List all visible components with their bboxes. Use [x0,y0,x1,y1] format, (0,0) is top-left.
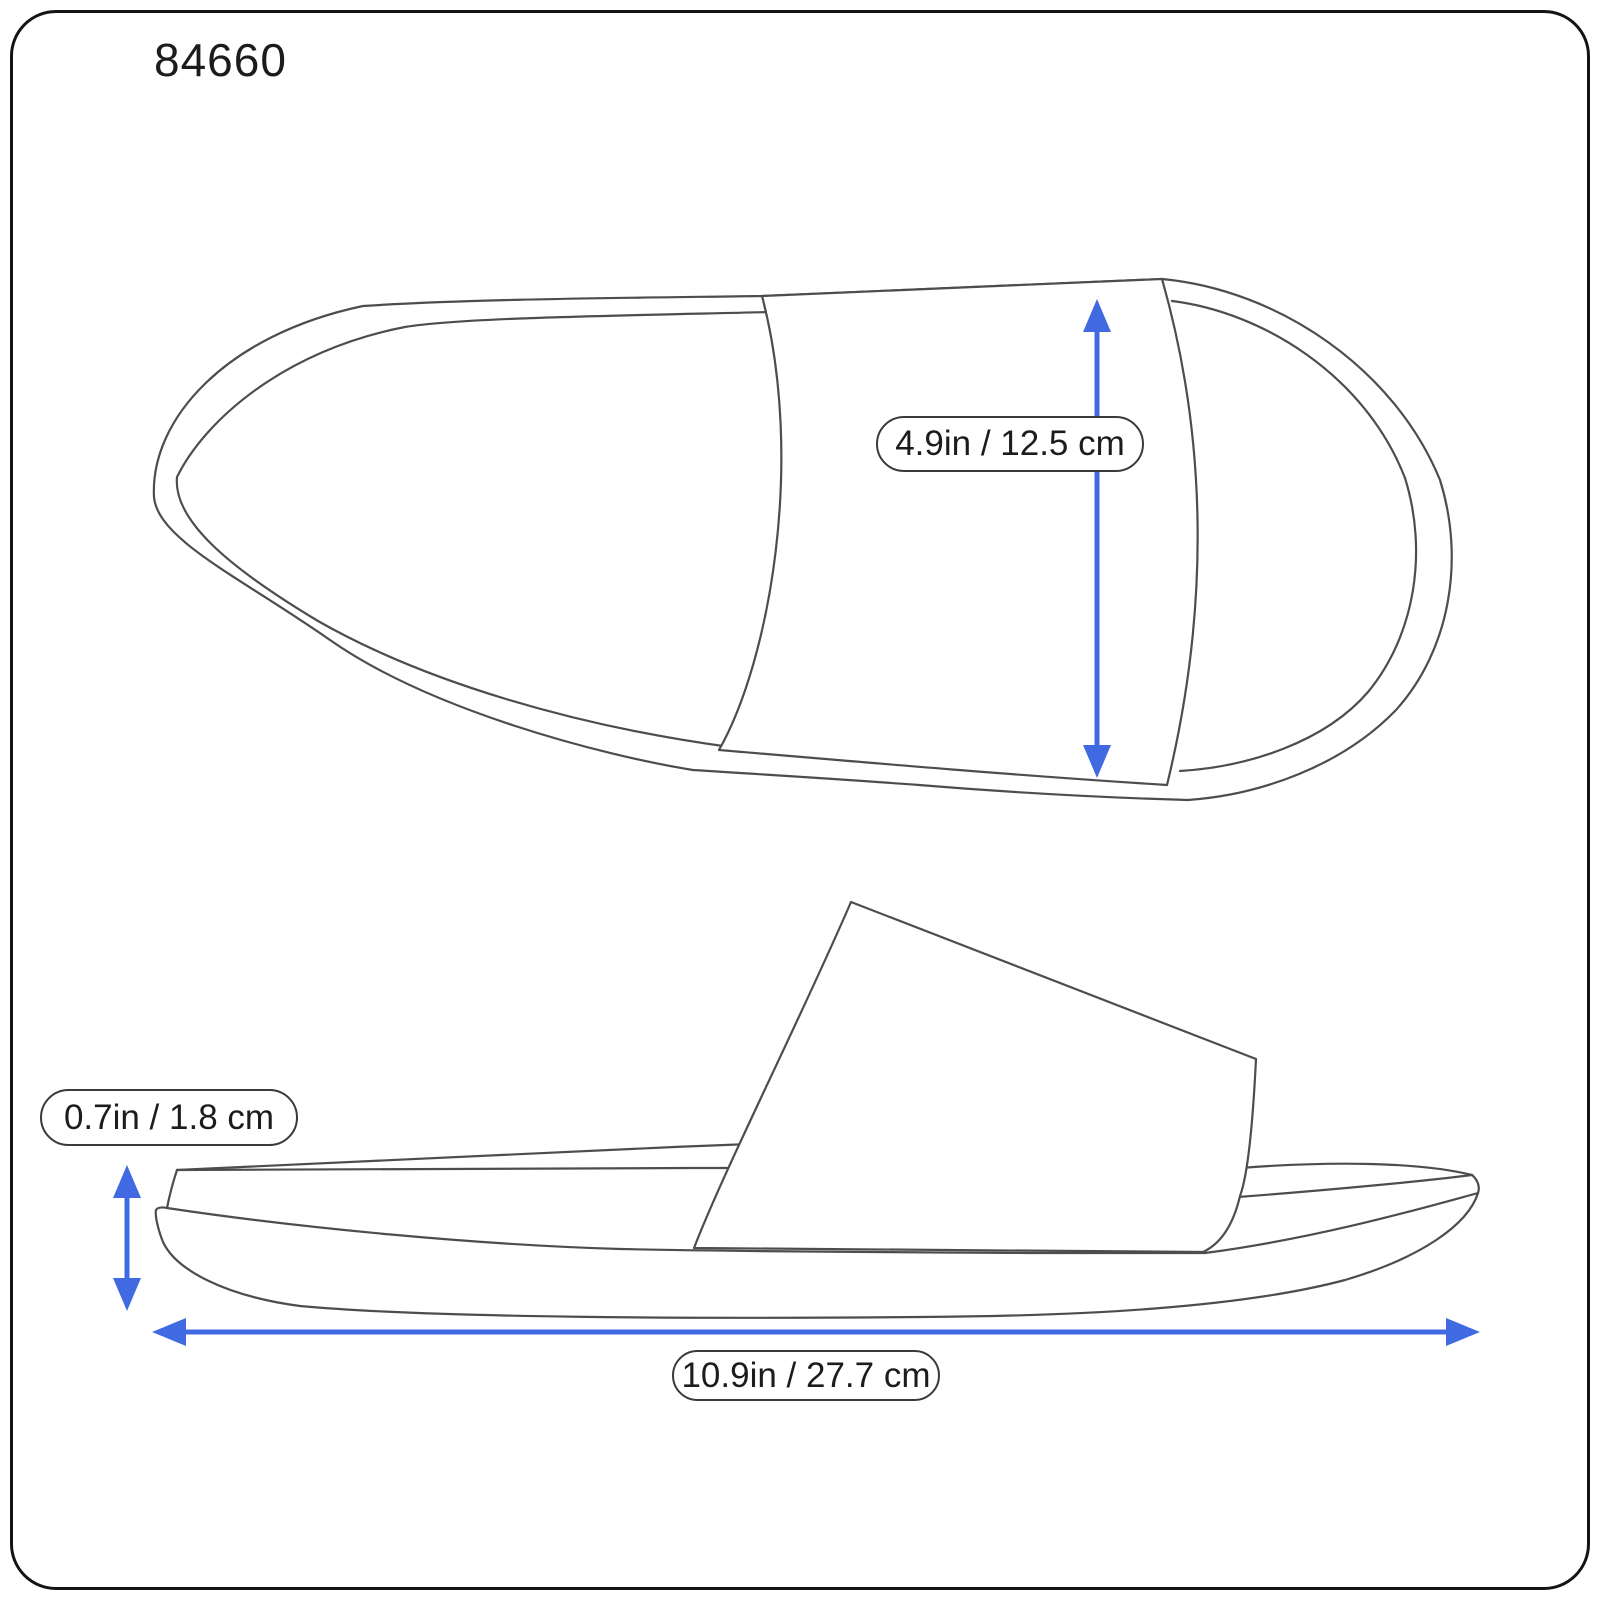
arrow-right-head [1446,1318,1480,1346]
sole-height-arrow [113,1165,141,1311]
diagram-page: 84660 [0,0,1600,1600]
sole-height-label: 0.7in / 1.8 cm [40,1089,298,1146]
length-arrow [152,1318,1480,1346]
side-view [156,902,1479,1318]
side-view-deck-edge-line [177,1168,735,1170]
strap-width-label: 4.9in / 12.5 cm [876,416,1144,472]
side-view-strap [694,902,1256,1252]
side-view-heel-deck-upper [1240,1164,1472,1175]
side-view-deck-front-face [167,1170,177,1208]
length-label: 10.9in / 27.7 cm [672,1350,940,1401]
arrow-up-head [113,1165,141,1198]
side-view-deck-top-line [177,1144,750,1170]
side-view-heel-deck-lower [1238,1175,1472,1197]
top-view [154,279,1452,800]
top-view-strap [719,279,1198,785]
arrow-down-head [113,1278,141,1311]
arrow-left-head [152,1318,186,1346]
side-view-heel-tip-edge [1472,1175,1479,1193]
